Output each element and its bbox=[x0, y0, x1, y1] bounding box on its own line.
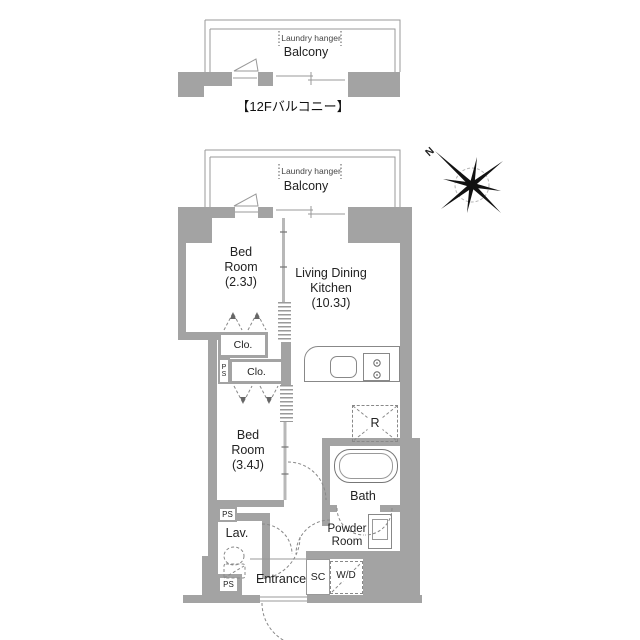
upper-balcony-caption: 【12Fバルコニー】 bbox=[236, 96, 349, 115]
wall-segment bbox=[322, 438, 330, 512]
wall-segment bbox=[183, 595, 260, 603]
kitchen-sink bbox=[330, 356, 357, 378]
wall-segment bbox=[400, 207, 412, 438]
lavatory-label: Lav. bbox=[226, 526, 249, 540]
wall-segment bbox=[363, 559, 420, 595]
upper-balcony-label: Balcony bbox=[284, 45, 328, 59]
pipe-space-2-label: PS bbox=[222, 510, 233, 519]
pipe-space-3: PS bbox=[218, 576, 239, 593]
entrance-label: Entrance bbox=[256, 572, 306, 586]
wall-segment bbox=[380, 505, 412, 512]
wall-segment bbox=[258, 207, 273, 218]
wall-segment bbox=[237, 513, 270, 521]
sliding-door-stack bbox=[278, 302, 291, 342]
wall-segment bbox=[178, 207, 186, 340]
wall-segment bbox=[322, 505, 337, 512]
bedroom1-label: Bed Room (2.3J) bbox=[217, 245, 265, 290]
wall-segment bbox=[258, 72, 273, 86]
shoe-closet-label: SC bbox=[311, 571, 326, 583]
upper-laundry-hanger-label: Laundry hanger bbox=[281, 33, 341, 43]
closet-1: Clo. bbox=[218, 332, 268, 358]
laundry-hanger-label: Laundry hanger bbox=[281, 166, 341, 176]
stove bbox=[363, 353, 390, 381]
bathtub-inner bbox=[339, 453, 393, 479]
pipe-space-1-label: PS bbox=[221, 364, 228, 378]
wall-segment bbox=[208, 332, 217, 515]
floor-plan: Clo. Clo. PS PS PS SC bbox=[0, 0, 640, 640]
ldk-label: Living Dining Kitchen (10.3J) bbox=[295, 266, 367, 311]
wall-segment bbox=[218, 500, 284, 507]
pipe-space-3-label: PS bbox=[223, 580, 234, 589]
closet-2: Clo. bbox=[229, 359, 284, 384]
compass-icon bbox=[435, 151, 503, 213]
pipe-space-2: PS bbox=[218, 507, 237, 522]
balcony-label: Balcony bbox=[284, 179, 328, 193]
bedroom2-label: Bed Room (3.4J) bbox=[224, 428, 272, 473]
casement-window-icon bbox=[234, 194, 258, 206]
wall-segment bbox=[307, 595, 422, 603]
washer-dryer-label: W/D bbox=[335, 570, 356, 581]
bath-label: Bath bbox=[350, 489, 376, 503]
wall-segment bbox=[348, 72, 400, 97]
closet-2-label: Clo. bbox=[247, 366, 266, 378]
pipe-space-1: PS bbox=[218, 358, 230, 384]
shoe-closet: SC bbox=[306, 559, 330, 595]
wall-segment bbox=[262, 521, 270, 578]
compass-north-label: N bbox=[423, 145, 437, 159]
powder-room-label: Powder Room bbox=[328, 523, 367, 549]
sliding-door-stack bbox=[280, 385, 293, 422]
wall-segment bbox=[306, 551, 420, 559]
closet-1-label: Clo. bbox=[234, 339, 253, 351]
refrigerator-label: R bbox=[367, 416, 382, 430]
washbasin-inner bbox=[372, 519, 388, 540]
casement-window-icon bbox=[234, 59, 258, 71]
wall-segment bbox=[178, 72, 204, 97]
